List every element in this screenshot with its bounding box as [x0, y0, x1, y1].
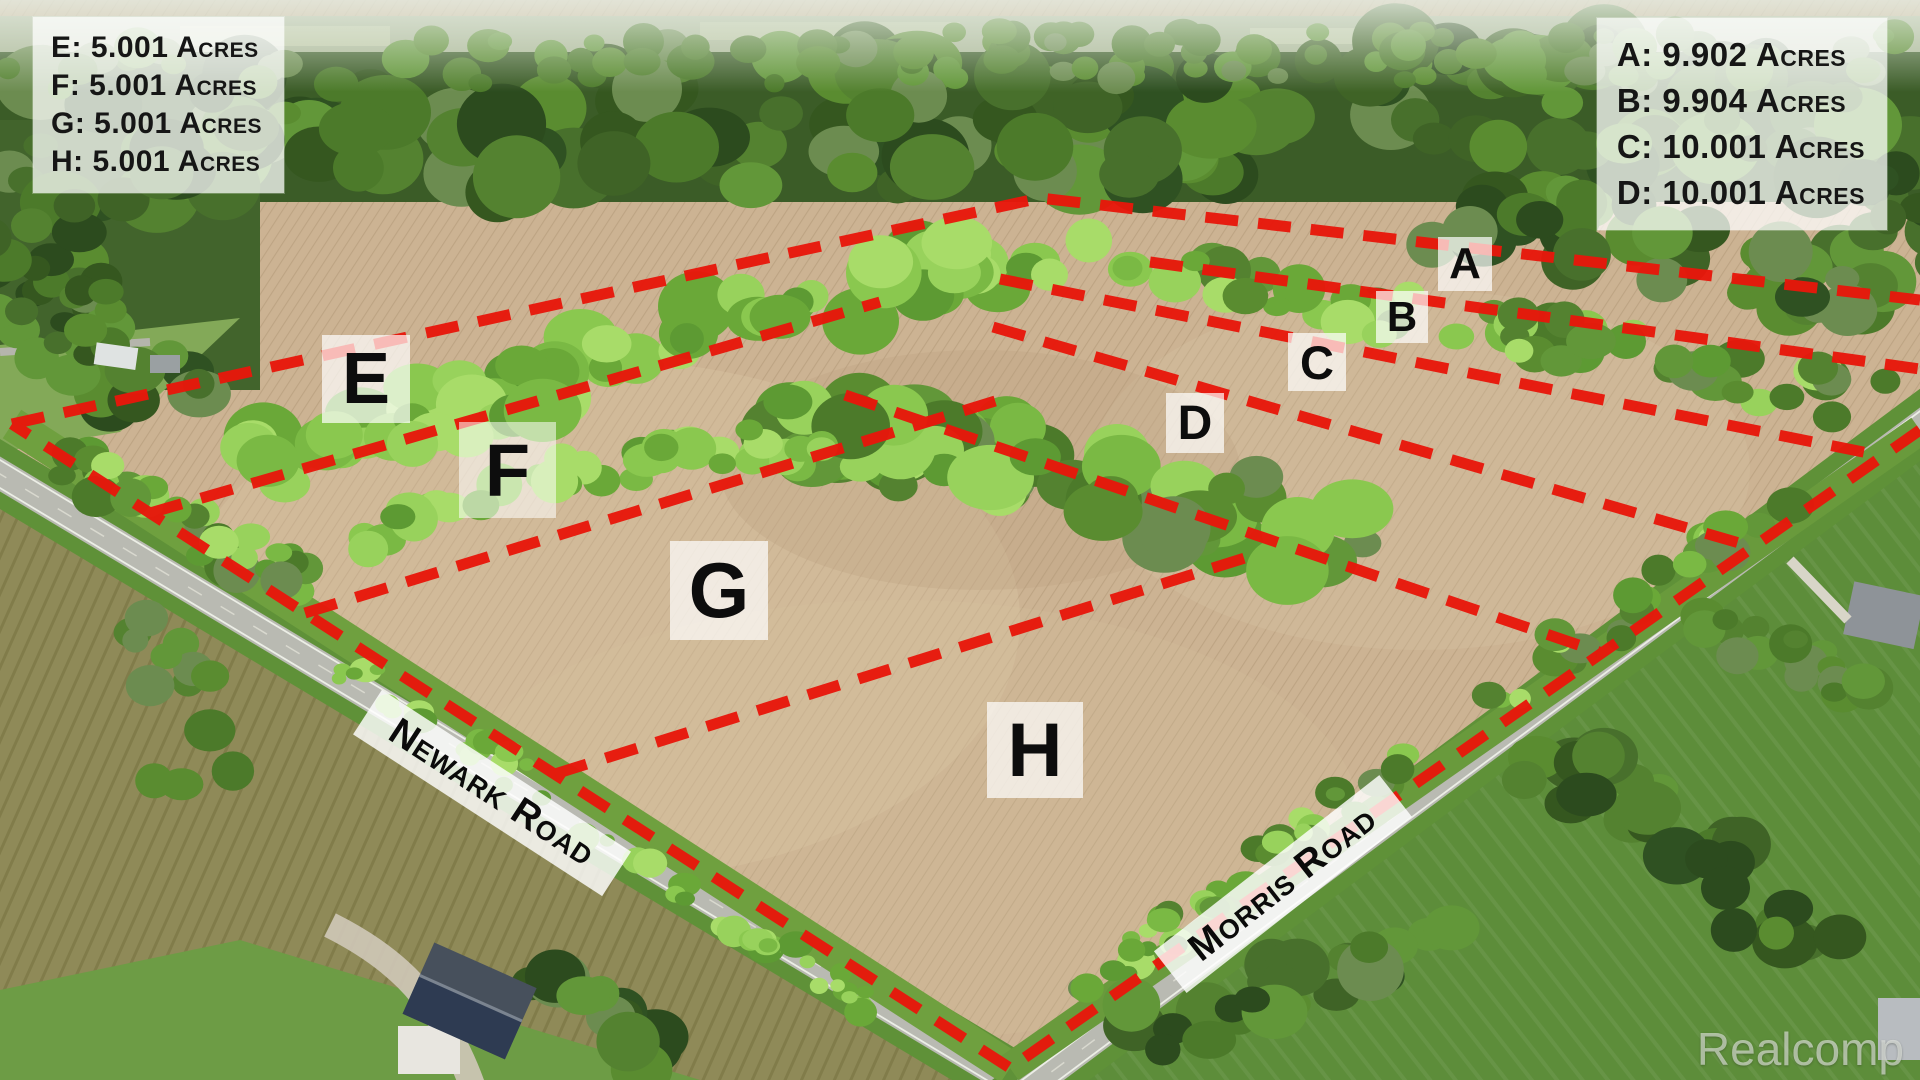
- parcel-label-c: C: [1288, 333, 1346, 391]
- parcel-label-g: G: [670, 541, 768, 640]
- acreage-legend-efgh: E: 5.001 Acres F: 5.001 Acres G: 5.001 A…: [33, 17, 284, 193]
- listing-photo: E: 5.001 Acres F: 5.001 Acres G: 5.001 A…: [0, 0, 1920, 1080]
- legend-line-h: H: 5.001 Acres: [51, 143, 262, 181]
- legend-line-d: D: 10.001 Acres: [1617, 170, 1865, 216]
- parcel-label-a: A: [1438, 237, 1492, 291]
- legend-line-g: G: 5.001 Acres: [51, 105, 262, 143]
- parcel-label-f: F: [459, 422, 556, 518]
- legend-line-e: E: 5.001 Acres: [51, 29, 262, 67]
- parcel-label-b: B: [1376, 291, 1428, 343]
- parcel-label-h: H: [987, 702, 1083, 798]
- legend-line-a: A: 9.902 Acres: [1617, 32, 1865, 78]
- realcomp-watermark: Realcomp: [1697, 1022, 1904, 1076]
- legend-line-f: F: 5.001 Acres: [51, 67, 262, 105]
- parcel-label-d: D: [1166, 393, 1224, 453]
- legend-line-c: C: 10.001 Acres: [1617, 124, 1865, 170]
- parcel-label-e: E: [322, 335, 410, 423]
- legend-line-b: B: 9.904 Acres: [1617, 78, 1865, 124]
- acreage-legend-abcd: A: 9.902 Acres B: 9.904 Acres C: 10.001 …: [1597, 18, 1887, 230]
